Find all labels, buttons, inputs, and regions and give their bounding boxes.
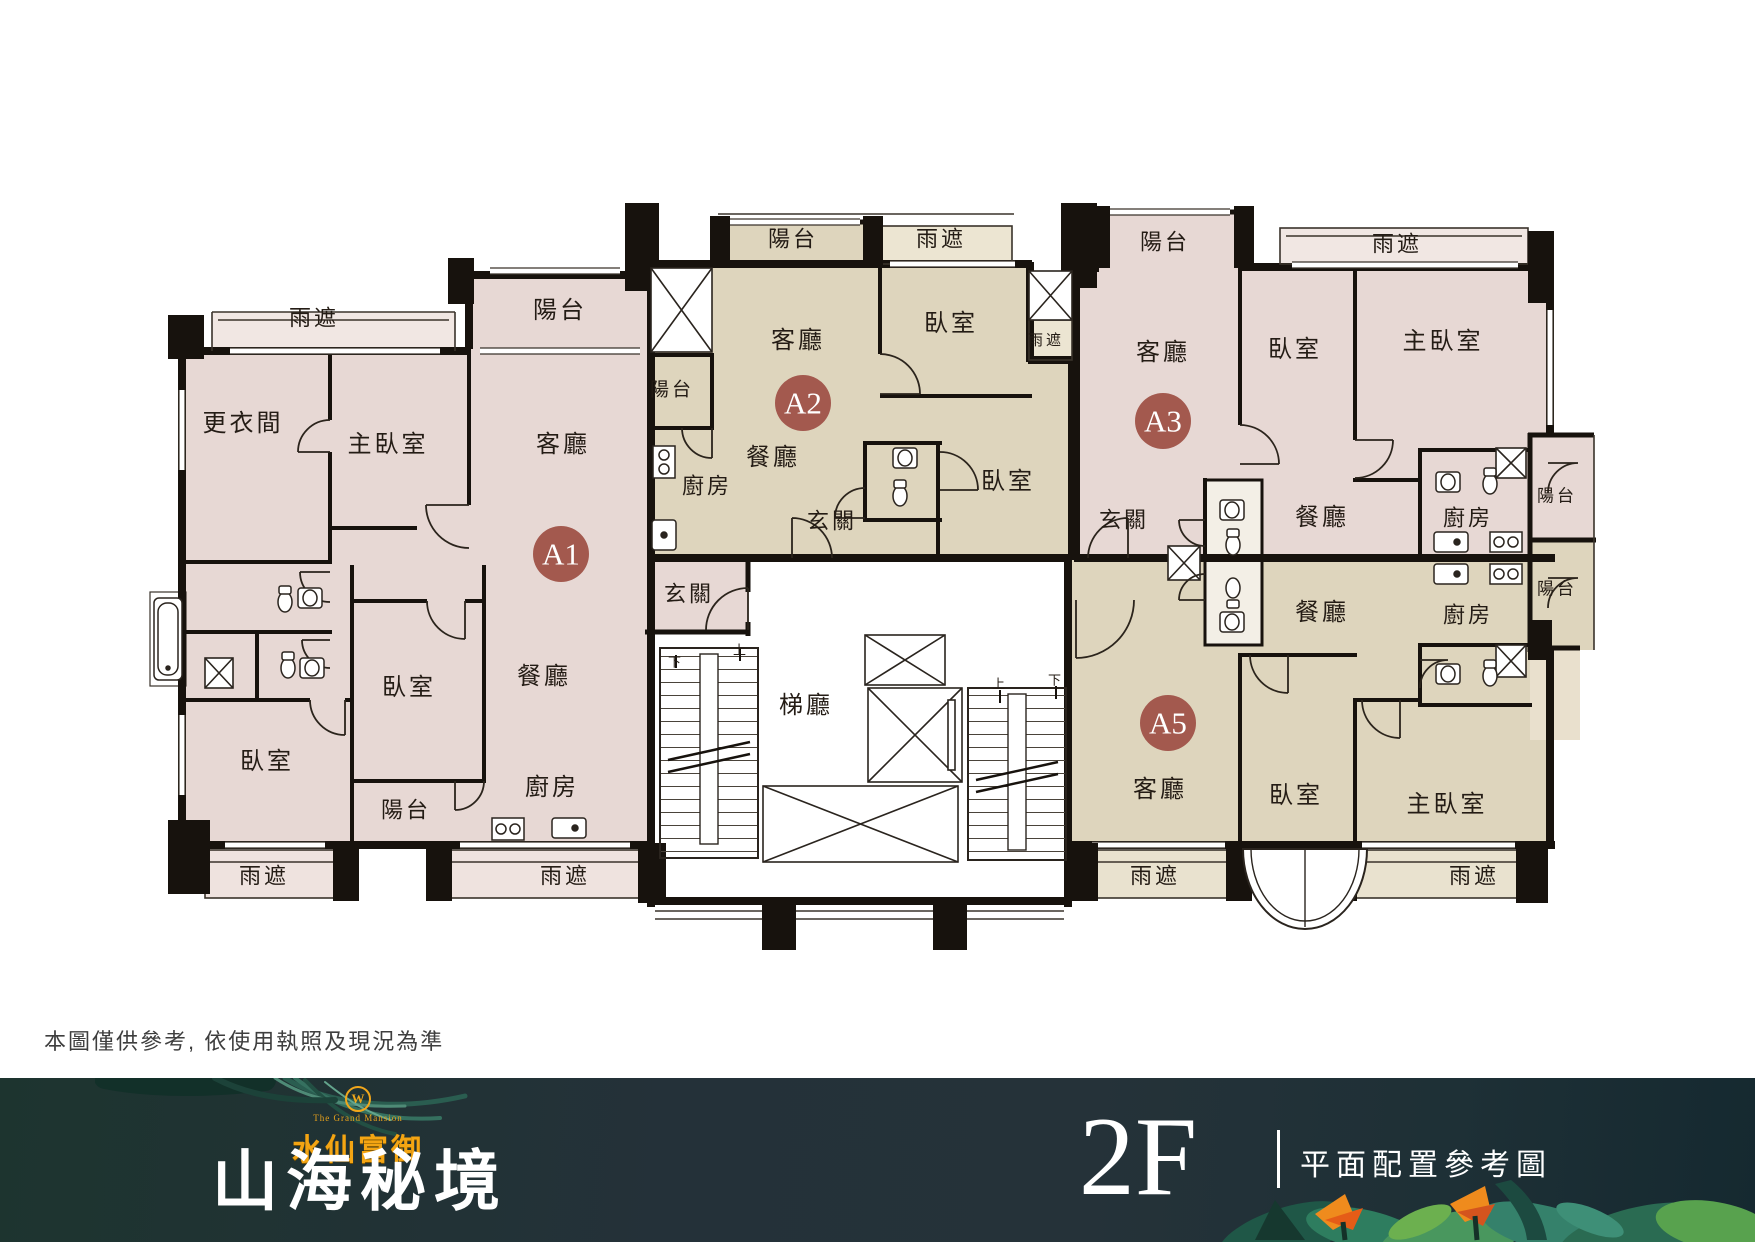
toilet — [1483, 660, 1497, 686]
room-label: 梯廳 — [779, 692, 833, 719]
room-label: 玄關 — [1099, 508, 1149, 533]
disclaimer-text: 本圖僅供參考, 依使用執照及現況為準 — [44, 1024, 444, 1056]
room-label: 廚房 — [525, 774, 579, 801]
kitchen-sink — [552, 818, 586, 838]
room-label: 雨遮 — [1130, 864, 1180, 889]
room-label: 臥室 — [924, 310, 978, 337]
room-label: 玄關 — [807, 509, 857, 534]
bathtub — [154, 598, 182, 680]
room-label: 客廳 — [1136, 339, 1190, 366]
room-label: 雨遮 — [289, 306, 339, 331]
footer-bar: W The Grand Mansion 水仙富御 山海秘境 2F 平面配置參考圖 — [0, 1078, 1755, 1242]
room-label: 陽台 — [768, 227, 818, 252]
stove — [492, 818, 524, 840]
floor-plan: 雨遮陽台更衣間主臥室客廳玄關餐廳臥室臥室陽台廚房雨遮雨遮陽台雨遮客廳臥室陽台餐廳… — [0, 0, 1755, 1010]
project-title: 山海秘境 — [150, 1150, 570, 1216]
room-label: 上 — [992, 677, 1008, 692]
stair-left — [660, 648, 758, 858]
room-label: 廚房 — [682, 474, 732, 499]
room-label: 主臥室 — [1403, 328, 1484, 355]
toilet — [281, 652, 295, 678]
room-label: 雨遮 — [916, 227, 966, 252]
room-label: 更衣間 — [203, 410, 284, 437]
room-label: 臥室 — [240, 748, 294, 775]
room-label: 上 — [733, 643, 749, 658]
room-label: 餐廳 — [1295, 599, 1349, 626]
floor-number: 2F — [1008, 1096, 1268, 1219]
room-label: 雨遮 — [1449, 864, 1499, 889]
sink — [1436, 472, 1460, 492]
stove — [653, 446, 675, 478]
plan-caption: 平面配置參考圖 — [1300, 1140, 1552, 1184]
room-label: 陽台 — [1140, 230, 1190, 255]
unit-marker: A5 — [1140, 695, 1196, 751]
sink — [1436, 664, 1460, 684]
room-label: 客廳 — [771, 327, 825, 354]
room-label: 陽台 — [533, 297, 587, 324]
sink — [300, 658, 324, 678]
room-label: 雨遮 — [1028, 332, 1064, 349]
toilet — [893, 480, 907, 506]
room-label: 主臥室 — [1407, 791, 1488, 818]
sink — [298, 588, 322, 608]
floor-plan-svg: 雨遮陽台更衣間主臥室客廳玄關餐廳臥室臥室陽台廚房雨遮雨遮陽台雨遮客廳臥室陽台餐廳… — [0, 0, 1755, 1010]
kitchen-sink — [1434, 564, 1468, 584]
brand-name-en: The Grand Mansion — [218, 1113, 498, 1123]
room-label: 陽台 — [1537, 580, 1577, 599]
room-label: 雨遮 — [239, 864, 289, 889]
room-label: 下 — [668, 655, 684, 670]
stove — [1490, 532, 1522, 552]
stair-right — [968, 686, 1066, 860]
unit-marker: A1 — [533, 526, 589, 582]
room-label: 主臥室 — [348, 431, 429, 458]
room-label: 陽台 — [1537, 487, 1577, 506]
room-label: 陽台 — [650, 379, 694, 401]
page: 雨遮陽台更衣間主臥室客廳玄關餐廳臥室臥室陽台廚房雨遮雨遮陽台雨遮客廳臥室陽台餐廳… — [0, 0, 1755, 1242]
sink — [1220, 612, 1244, 632]
toilet — [278, 586, 292, 612]
sink — [1220, 500, 1244, 520]
bay-window — [1243, 849, 1367, 929]
kitchen-sink — [1434, 532, 1468, 552]
sink — [893, 448, 917, 468]
room-label: 客廳 — [1133, 776, 1187, 803]
elevator-shaft — [868, 688, 962, 782]
toilet — [1226, 529, 1240, 555]
machine-room — [763, 786, 958, 862]
room-label: 臥室 — [981, 468, 1035, 495]
room-label: 玄關 — [664, 582, 714, 607]
toilet — [1226, 578, 1240, 608]
toilet — [1483, 468, 1497, 494]
room-label: 雨遮 — [1372, 232, 1422, 257]
svg-text:A1: A1 — [542, 537, 580, 572]
kitchen-sink — [652, 520, 676, 550]
room-label: 陽台 — [381, 798, 431, 823]
room-label: 雨遮 — [540, 864, 590, 889]
svg-text:A3: A3 — [1144, 404, 1182, 439]
room-label: 餐廳 — [746, 444, 800, 471]
room-label: 客廳 — [536, 431, 590, 458]
svg-text:A2: A2 — [784, 386, 822, 421]
room-label: 臥室 — [1268, 336, 1322, 363]
stove — [1490, 564, 1522, 584]
room-label: 餐廳 — [1295, 504, 1349, 531]
svg-text:A5: A5 — [1149, 706, 1187, 741]
brand-emblem-icon: W — [345, 1086, 371, 1112]
separator-line — [1277, 1130, 1280, 1188]
room-label: 臥室 — [382, 674, 436, 701]
unit-marker: A3 — [1135, 393, 1191, 449]
room-label: 廚房 — [1443, 603, 1493, 628]
unit-marker: A2 — [775, 375, 831, 431]
room-label: 餐廳 — [517, 663, 571, 690]
room-label: 廚房 — [1443, 506, 1493, 531]
room-label: 臥室 — [1269, 782, 1323, 809]
room-label: 下 — [1048, 673, 1064, 688]
